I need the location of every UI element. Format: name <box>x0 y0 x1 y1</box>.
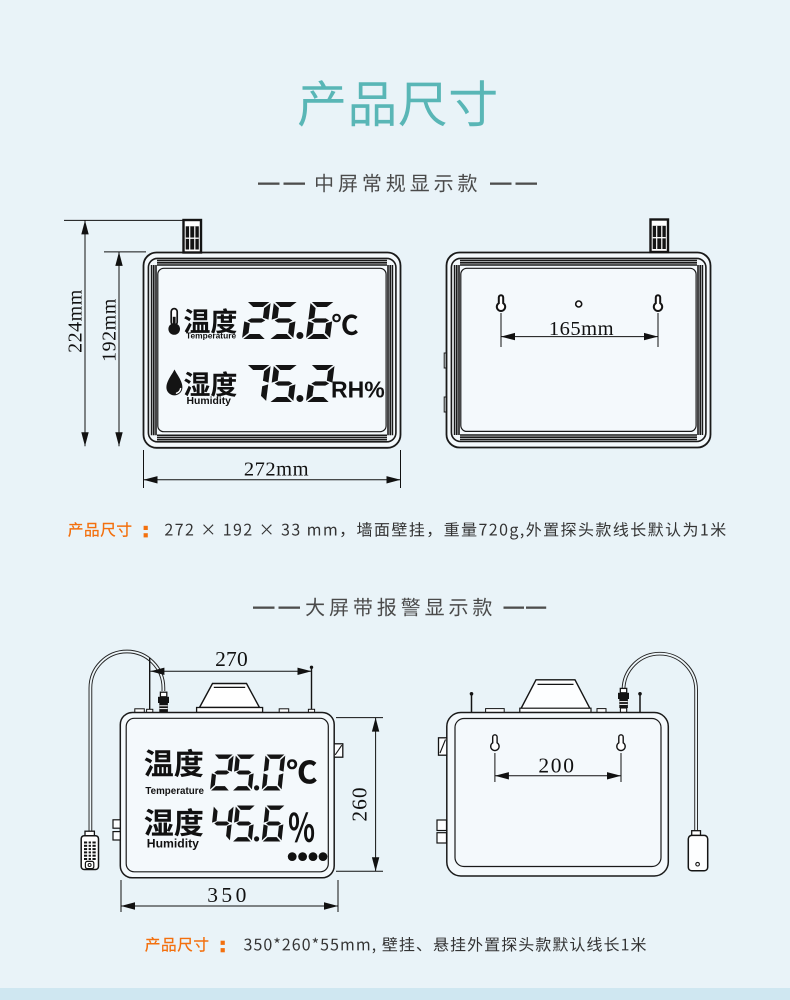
svg-text:Humidity: Humidity <box>147 837 199 851</box>
svg-text:Temperature: Temperature <box>145 786 204 797</box>
svg-text:Humidity: Humidity <box>187 396 232 407</box>
svg-text:165mm: 165mm <box>549 318 614 340</box>
svg-text:RH%: RH% <box>331 377 385 403</box>
svg-text:Temperature: Temperature <box>186 331 236 341</box>
svg-text:270: 270 <box>215 647 248 671</box>
svg-text:224mm: 224mm <box>65 289 87 353</box>
svg-text:192mm: 192mm <box>99 298 121 362</box>
svg-text:350: 350 <box>207 883 249 907</box>
svg-text:272mm: 272mm <box>244 459 309 481</box>
svg-text:200: 200 <box>538 754 575 778</box>
svg-text:260: 260 <box>348 786 372 821</box>
